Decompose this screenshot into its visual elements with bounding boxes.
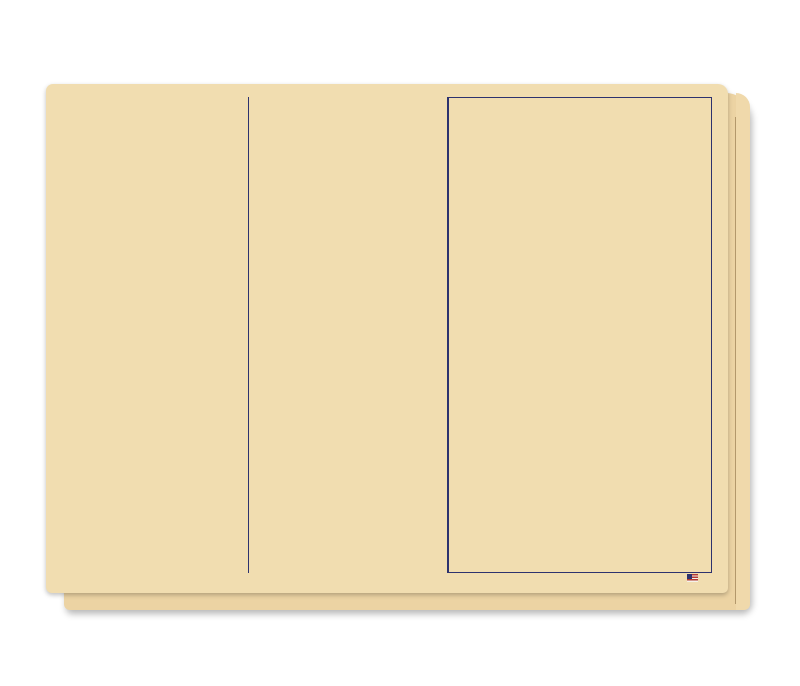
folder-back-edge — [736, 93, 750, 610]
folder-crease — [735, 117, 736, 604]
cost-options-column — [248, 97, 448, 573]
vehicle-inv-sale-form — [60, 97, 712, 573]
buyer-vehicle-info-column — [60, 97, 248, 573]
product-photo — [0, 0, 800, 686]
accounting-column — [448, 97, 712, 573]
usa-flag-icon — [687, 574, 698, 582]
made-in-usa — [520, 574, 698, 582]
